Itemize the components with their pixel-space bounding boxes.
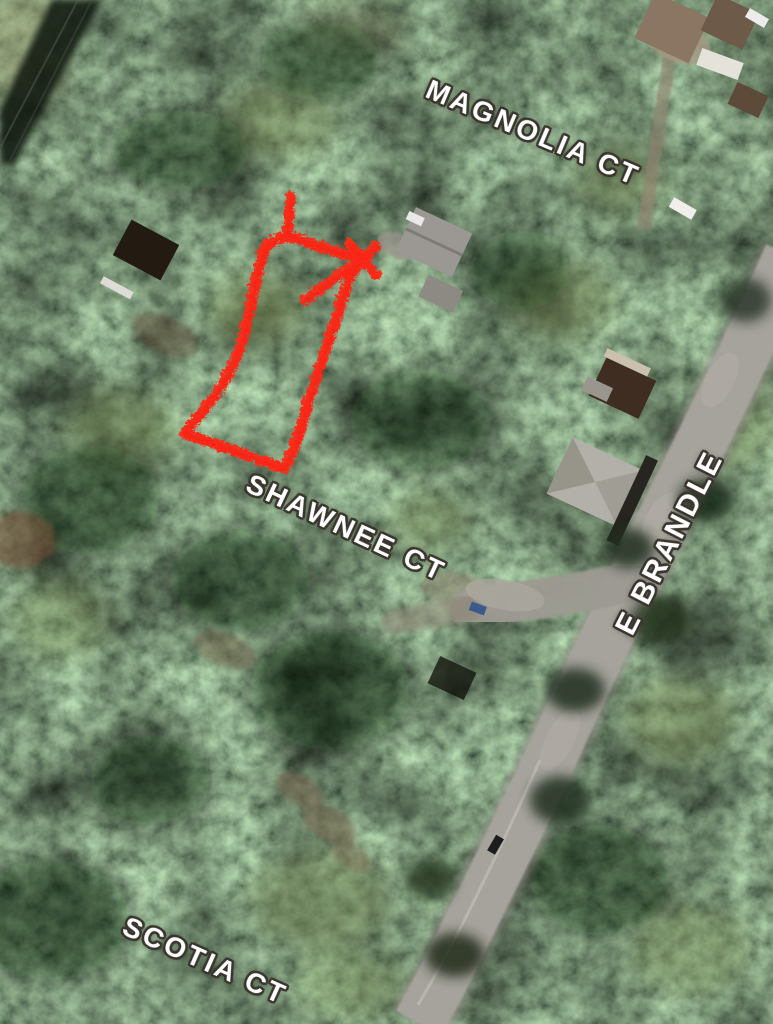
aerial-map[interactable]: MAGNOLIA CT SHAWNEE CT E BRANDLE SCOTIA …: [0, 0, 773, 1024]
satellite-imagery: [0, 0, 773, 1024]
